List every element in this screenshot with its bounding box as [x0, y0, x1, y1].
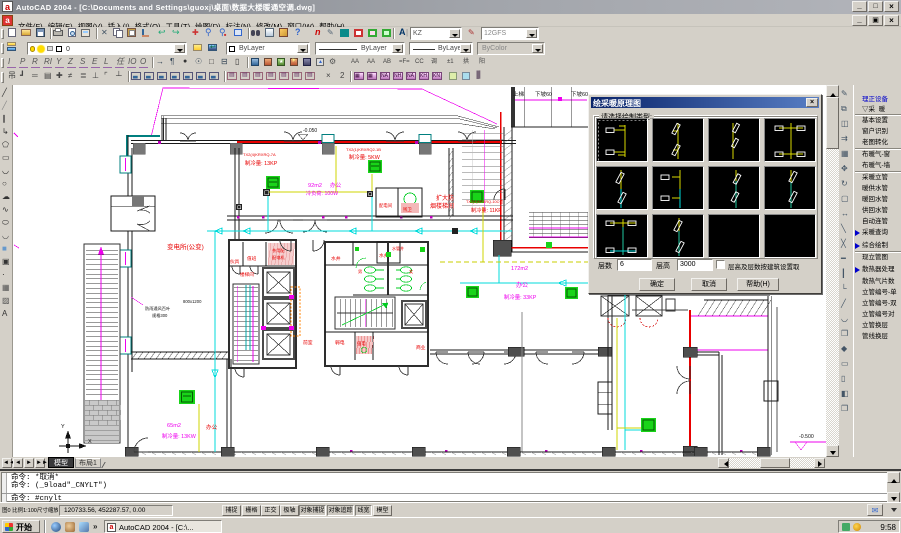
svg-text:800x1200: 800x1200 [183, 299, 202, 304]
svg-text:65m2: 65m2 [167, 423, 181, 429]
svg-text:配电间: 配电间 [379, 202, 392, 209]
svg-text:商业: 商业 [416, 344, 426, 351]
svg-text:女: 女 [409, 268, 413, 275]
svg-text:172m2: 172m2 [511, 266, 528, 272]
svg-text:冷负荷: 100W: 冷负荷: 100W [306, 189, 338, 197]
svg-text:办公: 办公 [330, 181, 342, 189]
svg-text:强电: 强电 [357, 340, 366, 347]
svg-text:上梯: 上梯 [513, 90, 525, 98]
svg-text:TX2(4)KRXRQ-7A: TX2(4)KRXRQ-7A [243, 152, 276, 157]
svg-text:TX2(1)KRXRQ2-1B: TX2(1)KRXRQ2-1B [346, 147, 381, 152]
svg-text:男: 男 [358, 269, 362, 275]
svg-text:-0.050: -0.050 [303, 128, 317, 134]
svg-text:伙具: 伙具 [230, 259, 240, 265]
svg-text:制冷量: 13KW: 制冷量: 13KW [162, 432, 197, 440]
svg-text:水井: 水井 [331, 255, 341, 262]
svg-text:制冷量: 5KW: 制冷量: 5KW [349, 153, 381, 161]
svg-text:残卫: 残卫 [403, 206, 412, 213]
svg-text:值班: 值班 [247, 255, 257, 262]
svg-text:前室: 前室 [303, 339, 313, 346]
svg-text:规格300: 规格300 [152, 312, 168, 319]
svg-text:弱电: 弱电 [335, 339, 345, 346]
svg-text:办公: 办公 [516, 281, 528, 289]
svg-text:水管井: 水管井 [392, 245, 404, 251]
svg-text:-0.500: -0.500 [799, 434, 814, 440]
svg-text:配电机: 配电机 [272, 254, 285, 261]
svg-text:防雨通风百叶: 防雨通风百叶 [145, 305, 171, 312]
svg-text:变电所(公变): 变电所(公变) [167, 242, 204, 251]
svg-text:TX2(4)KRXRQ-10C会: TX2(4)KRXRQ-10C会 [466, 199, 503, 204]
svg-text:制冷量: 11KP: 制冷量: 11KP [471, 206, 502, 214]
svg-text:92m2: 92m2 [308, 183, 322, 189]
svg-text:烟楼梯间: 烟楼梯间 [430, 202, 454, 210]
svg-text:扩大防: 扩大防 [436, 194, 454, 202]
svg-text:X: X [88, 439, 92, 445]
svg-text:Y: Y [61, 424, 65, 430]
svg-text:制冷量: 13KP: 制冷量: 13KP [245, 159, 278, 167]
svg-text:制冷量: 33KP: 制冷量: 33KP [504, 293, 537, 301]
svg-text:楼梯间: 楼梯间 [240, 271, 254, 278]
svg-text:下坡60: 下坡60 [571, 90, 588, 98]
svg-text:下坡60: 下坡60 [535, 90, 552, 98]
svg-text:办公: 办公 [206, 423, 218, 431]
